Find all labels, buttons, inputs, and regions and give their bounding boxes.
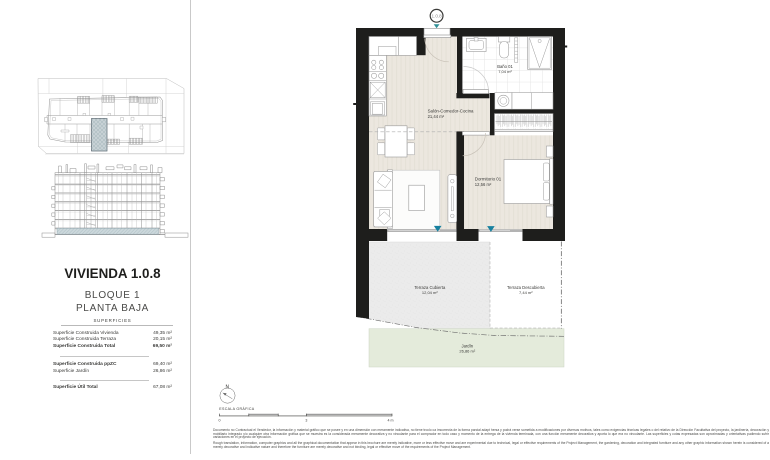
- svg-text:1.0.8: 1.0.8: [431, 14, 442, 19]
- svg-text:N: N: [225, 384, 229, 390]
- svg-text:7,44 m²: 7,44 m²: [519, 290, 533, 295]
- svg-text:12,04 m²: 12,04 m²: [422, 290, 438, 295]
- svg-text:4 m: 4 m: [388, 419, 394, 423]
- svg-text:21,44 m²: 21,44 m²: [428, 114, 445, 119]
- svg-text:ESCALA GRÁFICA: ESCALA GRÁFICA: [219, 407, 254, 411]
- svg-text:26,86 m²: 26,86 m²: [459, 348, 475, 353]
- svg-text:0: 0: [219, 419, 221, 423]
- svg-text:7,04 m²: 7,04 m²: [498, 69, 512, 74]
- svg-text:12,56 m²: 12,56 m²: [475, 182, 492, 187]
- svg-text:3: 3: [305, 419, 307, 423]
